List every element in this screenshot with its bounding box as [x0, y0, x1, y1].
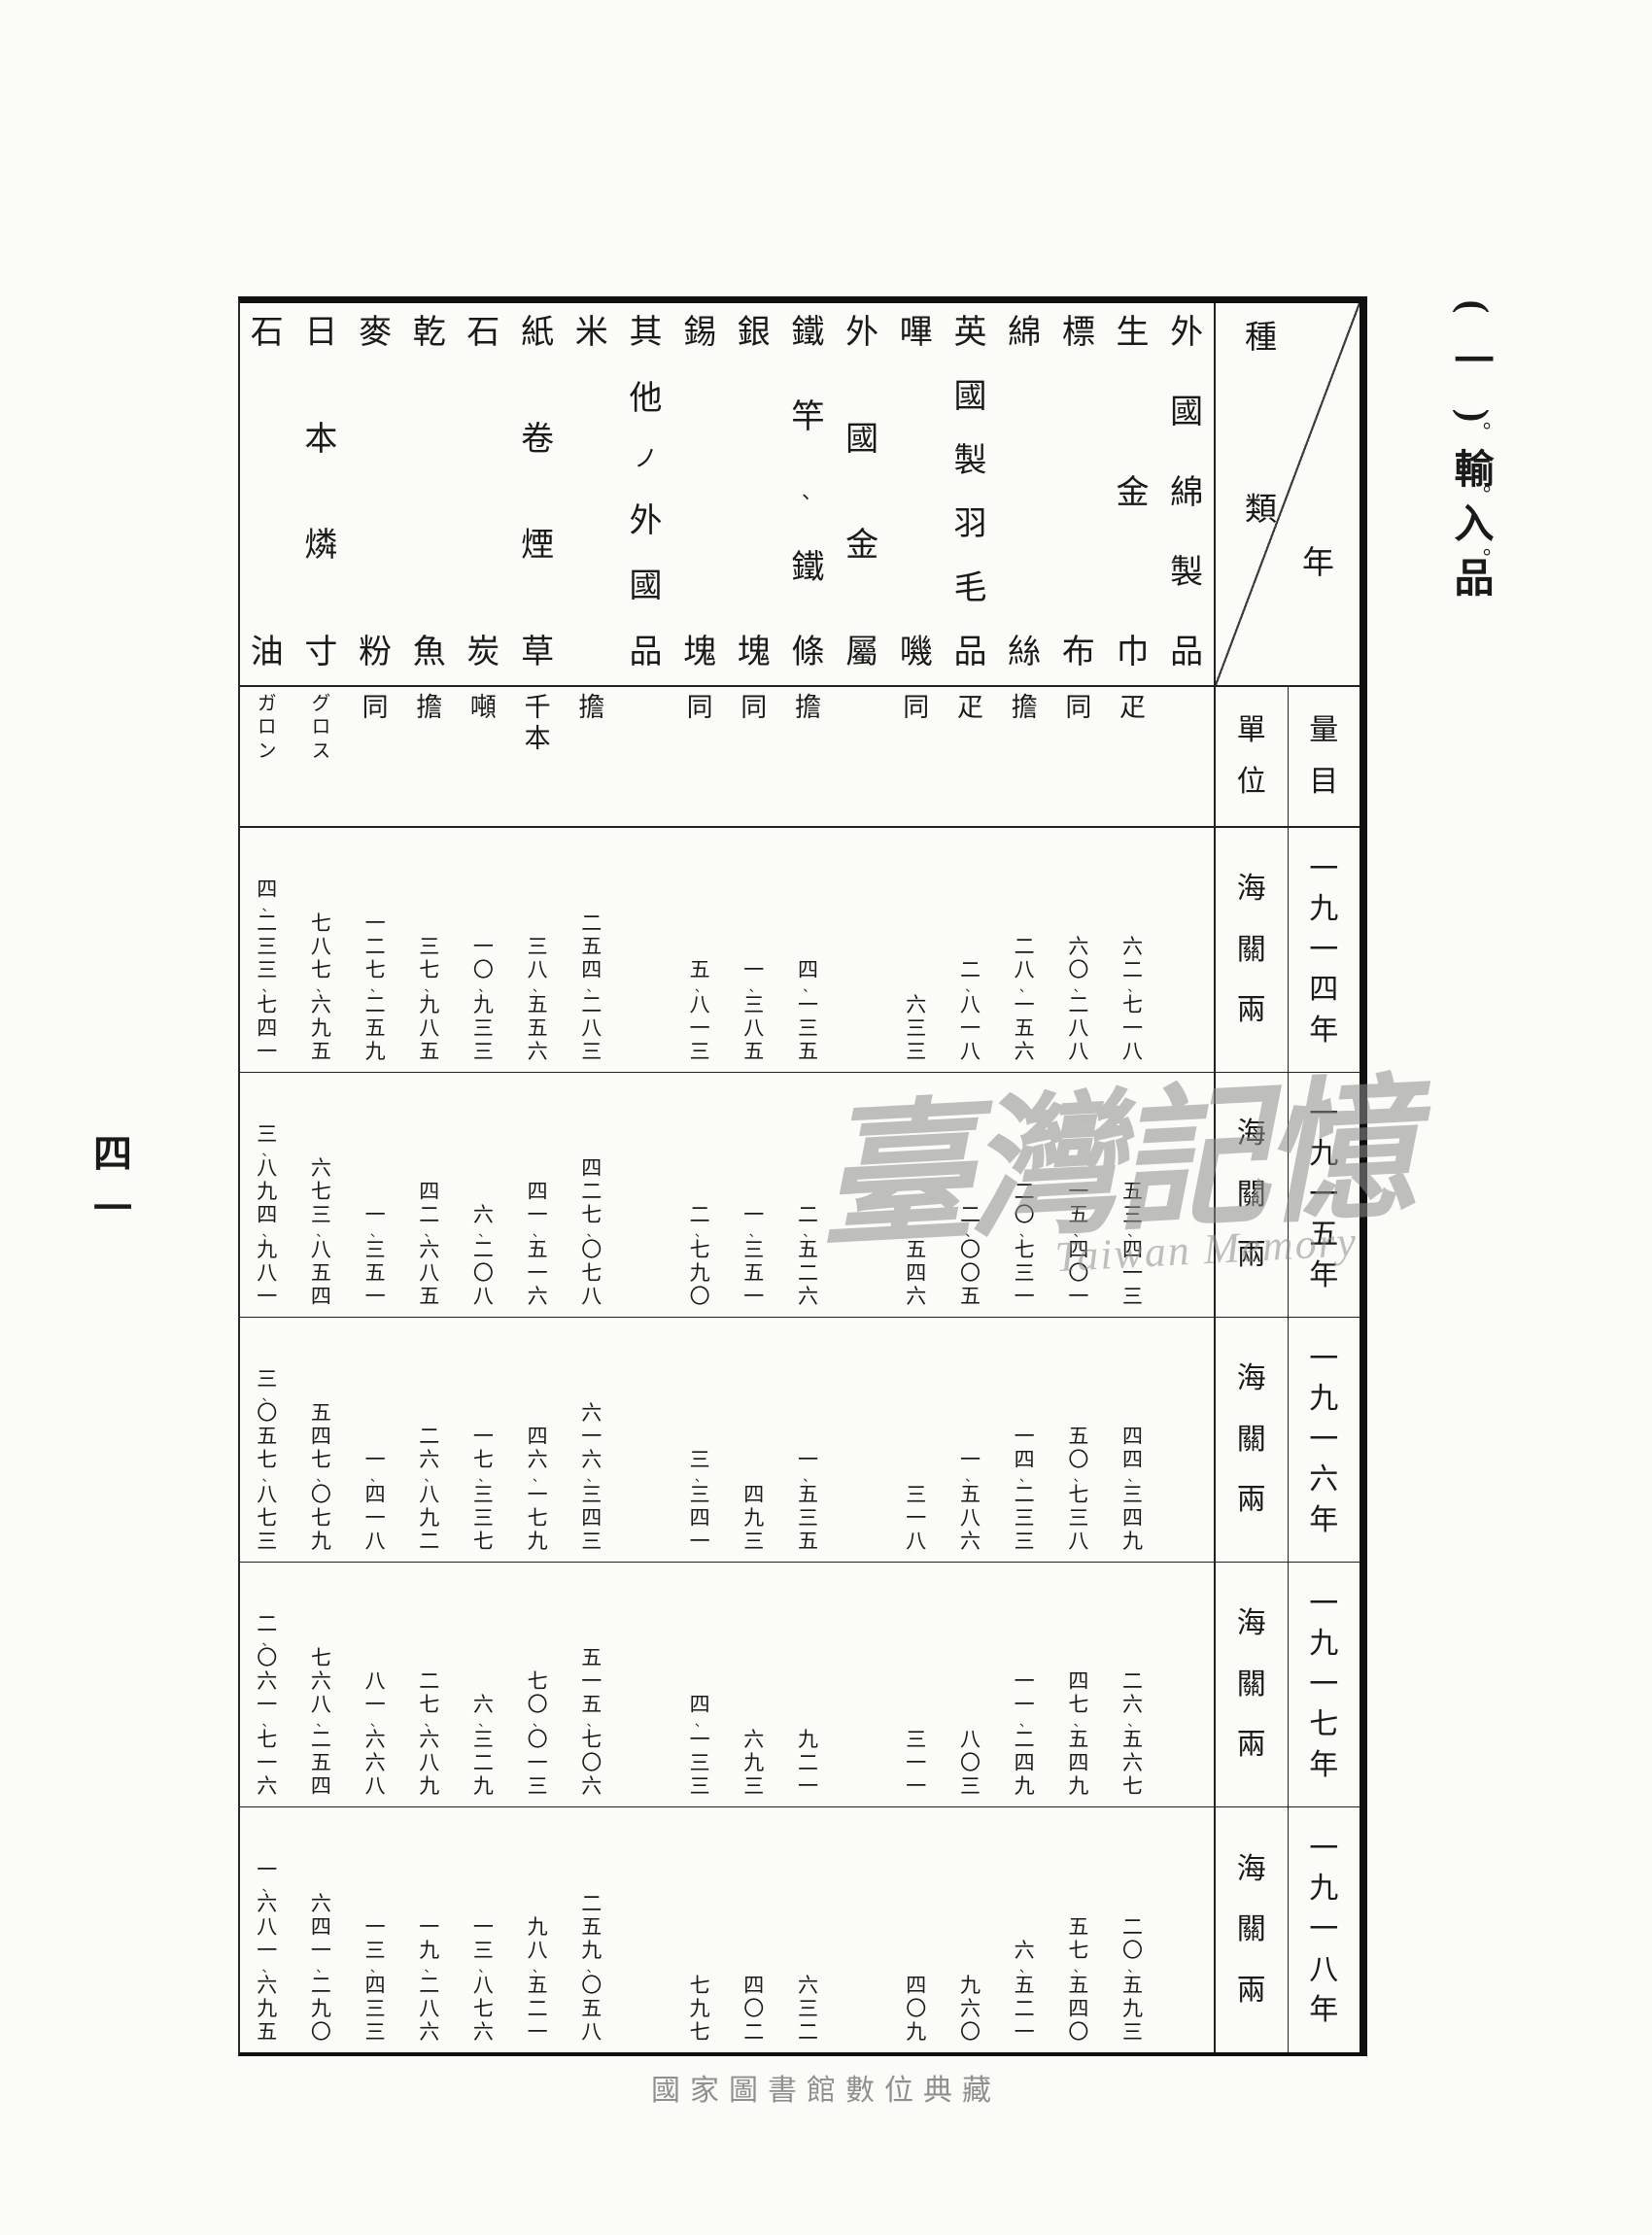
commodity-column: 嗶嘰 同 六三三 五四六 三一八 三一一 四〇九: [889, 303, 944, 2052]
value-1918: 九六〇: [960, 1813, 981, 2043]
unit-cell: 擔: [997, 687, 1051, 828]
commodity-name: 麥粉: [359, 317, 392, 670]
value-cell: 一三、四三三: [348, 1807, 402, 2052]
value-cell: 二六、八九二: [402, 1318, 457, 1563]
value-1916: 三、〇五七、八七三: [257, 1324, 277, 1552]
value-cell: 四、一三五: [781, 828, 836, 1073]
value-cell: [1159, 828, 1214, 1073]
value-cell: 六〇、二八八: [1051, 828, 1106, 1073]
unit-value: 噸: [470, 695, 497, 721]
value-1914: 六三三: [906, 834, 926, 1062]
value-cell: 一七、三三七: [457, 1318, 511, 1563]
value-cell: 三七、九八五: [402, 828, 457, 1073]
year-subcell: 一九一四年: [1289, 828, 1360, 1072]
value-1917: 六九三: [743, 1568, 764, 1797]
value-cell: [619, 1563, 673, 1807]
year-row-header: 海關兩 一九一四年: [1216, 828, 1359, 1073]
value-cell: 二〇、五九三: [1106, 1807, 1160, 2052]
value-cell: 一二七、二五九: [348, 828, 402, 1073]
value-1914: 四、一三五: [798, 834, 818, 1062]
value-cell: 七〇、〇一三: [510, 1563, 565, 1807]
value-1916: 三一八: [906, 1324, 926, 1552]
value-cell: 五、八一三: [672, 828, 727, 1073]
value-1917: 四七、五四九: [1068, 1568, 1088, 1797]
value-1915: 一五、四〇一: [1068, 1079, 1088, 1307]
commodity-column: 日本燐寸 グロス 七八七、六九五 六七三、八五四 五四七、〇七九 七六八、二五四…: [294, 303, 349, 2052]
commodity-column: 鐵竿、鐵條 擔 四、一三五 二、五二六 一、五三五 九二一 六三二: [781, 303, 836, 2052]
unit-value: 同: [903, 695, 929, 721]
value-cell: 一三、八七六: [457, 1807, 511, 2052]
value-cell: [835, 1073, 889, 1318]
value-cell: 四〇二: [727, 1807, 781, 2052]
scanned-document-page: (一)輸入品 。 。 。 種類 年 單位 量目 海關兩 一九一四年 海關兩: [0, 0, 1652, 2235]
value-cell: 九八、五二一: [510, 1807, 565, 2052]
value-cell: 一、三八五: [727, 828, 781, 1073]
commodity-name-cell: 麥粉: [348, 303, 402, 687]
commodity-name: 錫塊: [683, 317, 716, 670]
value-cell: 六二、七一八: [1106, 828, 1160, 1073]
value-1918: 四〇九: [906, 1813, 926, 2043]
value-cell: [1159, 1807, 1214, 2052]
value-unit-label: 海關兩: [1237, 1318, 1266, 1562]
value-1918: 一三、八七六: [473, 1813, 494, 2043]
value-1918: 四〇二: [743, 1813, 764, 2043]
commodity-name: 石油: [251, 317, 284, 670]
value-unit-subcell: 海關兩: [1216, 828, 1289, 1072]
value-1916: 六一六、三四三: [581, 1324, 602, 1552]
value-cell: 二、八一八: [944, 828, 998, 1073]
value-cell: 八一、六六八: [348, 1563, 402, 1807]
commodity-column: 乾魚 擔 三七、九八五 四二、六八五 二六、八九二 二七、六八九 一九、二八六: [402, 303, 457, 2052]
value-cell: 六、三二九: [457, 1563, 511, 1807]
year-row-header: 海關兩 一九一八年: [1216, 1807, 1359, 2052]
year-row-header: 海關兩 一九一七年: [1216, 1563, 1359, 1807]
value-cell: 五〇、七三八: [1051, 1318, 1106, 1563]
unit-cell: グロス: [294, 687, 349, 828]
year-row-header: 海關兩 一九一六年: [1216, 1318, 1359, 1563]
unit-value: 擔: [416, 695, 442, 721]
value-cell: 六、五二一: [997, 1807, 1051, 2052]
value-1917: 二、〇六一、七一六: [257, 1568, 277, 1797]
value-1914: 六〇、二八八: [1068, 834, 1088, 1062]
commodity-name: 其他ノ外國品: [629, 317, 662, 670]
unit-value: 同: [740, 695, 767, 721]
value-cell: 九二一: [781, 1563, 836, 1807]
emphasis-dot: 。: [1483, 405, 1503, 434]
unit-header-subcell: 單位: [1216, 687, 1289, 826]
unit-cell: 擔: [781, 687, 836, 828]
value-1915: 二〇、七三一: [1015, 1079, 1035, 1307]
value-1915: 三、八九四、九八一: [257, 1079, 277, 1307]
value-1916: 一、四一八: [365, 1324, 386, 1552]
commodity-column: 米 擔 二五四、二八三 四二七、〇七八 六一六、三四三 五一五、七〇六 二五九、…: [565, 303, 619, 2052]
unit-cell: [619, 687, 673, 828]
commodity-column: 麥粉 同 一二七、二五九 一、三五一 一、四一八 八一、六六八 一三、四三三: [348, 303, 402, 2052]
value-1916: 一七、三三七: [473, 1324, 494, 1552]
value-cell: 七八七、六九五: [294, 828, 349, 1073]
value-1915: 一、三五一: [365, 1079, 386, 1307]
value-1917: 二七、六八九: [419, 1568, 439, 1797]
unit-cell: 擔: [402, 687, 457, 828]
unit-value: 同: [1065, 695, 1091, 721]
value-cell: 一、三五一: [348, 1073, 402, 1318]
commodity-name: 鐵竿、鐵條: [791, 317, 824, 670]
value-cell: 一、六八一、六九五: [240, 1807, 294, 2052]
value-1914: 六二、七一八: [1122, 834, 1143, 1062]
commodity-name-cell: 銀塊: [727, 303, 781, 687]
value-1916: 二六、八九二: [419, 1324, 439, 1552]
commodity-name: 英國製羽毛品: [953, 317, 986, 670]
commodity-name-cell: 石油: [240, 303, 294, 687]
import-statistics-table: 種類 年 單位 量目 海關兩 一九一四年 海關兩 一九一五年 海關兩 一九一六年…: [238, 296, 1367, 2056]
section-title-text: (一)輸入品: [1421, 287, 1528, 599]
value-cell: 一、五三五: [781, 1318, 836, 1563]
corner-cell: 種類 年: [1216, 303, 1359, 687]
commodity-name-cell: 綿絲: [997, 303, 1051, 687]
unit-value: 同: [687, 695, 713, 721]
commodity-name-cell: 標布: [1051, 303, 1106, 687]
value-1915: 四一、五一六: [528, 1079, 548, 1307]
commodity-column: 石炭 噸 一〇、九三三 六、二〇八 一七、三三七 六、三二九 一三、八七六: [457, 303, 511, 2052]
value-cell: 六四一、二九〇: [294, 1807, 349, 2052]
value-cell: 六七三、八五四: [294, 1073, 349, 1318]
value-cell: 一、四一八: [348, 1318, 402, 1563]
commodity-name: 生金巾: [1116, 317, 1149, 670]
value-cell: 四九三: [727, 1318, 781, 1563]
value-1914: 五、八一三: [690, 834, 710, 1062]
value-1918: 二五九、〇五八: [581, 1813, 602, 2043]
value-1918: 五七、五四〇: [1068, 1813, 1088, 2043]
year-label: 一九一八年: [1309, 1807, 1338, 2052]
value-unit-subcell: 海關兩: [1216, 1073, 1289, 1317]
value-1914: 三八、五五六: [528, 834, 548, 1062]
value-cell: [835, 1318, 889, 1563]
unit-cell: 噸: [457, 687, 511, 828]
value-cell: 四二、六八五: [402, 1073, 457, 1318]
value-1918: 二〇、五九三: [1122, 1813, 1143, 2043]
value-cell: 三一一: [889, 1563, 944, 1807]
commodity-name-cell: 英國製羽毛品: [944, 303, 998, 687]
value-cell: 二、七九〇: [672, 1073, 727, 1318]
value-1914: 三七、九八五: [419, 834, 439, 1062]
value-1917: 七〇、〇一三: [528, 1568, 548, 1797]
year-subcell: 一九一六年: [1289, 1318, 1360, 1562]
value-unit-subcell: 海關兩: [1216, 1318, 1289, 1562]
commodity-column: 外國綿製品: [1159, 303, 1214, 2052]
value-1917: 一一、二四九: [1015, 1568, 1035, 1797]
value-unit-label: 海關兩: [1237, 828, 1266, 1072]
value-cell: 二五四、二八三: [565, 828, 619, 1073]
table-header-column: 種類 年 單位 量目 海關兩 一九一四年 海關兩 一九一五年 海關兩 一九一六年…: [1214, 303, 1359, 2052]
unit-value: グロス: [312, 695, 330, 761]
value-unit-subcell: 海關兩: [1216, 1807, 1289, 2052]
value-1916: 四四、三四九: [1122, 1324, 1143, 1552]
commodity-name: 日本燐寸: [304, 317, 337, 670]
year-row-header: 海關兩 一九一五年: [1216, 1073, 1359, 1318]
value-1914: 二五四、二八三: [581, 834, 602, 1062]
year-label: 一九一四年: [1309, 828, 1338, 1072]
value-cell: 二六、五六七: [1106, 1563, 1160, 1807]
value-cell: 五三、四一三: [1106, 1073, 1160, 1318]
value-cell: 三、八九四、九八一: [240, 1073, 294, 1318]
value-1914: 一、三八五: [743, 834, 764, 1062]
corner-kind-label: 種類: [1245, 323, 1277, 527]
commodity-column: 紙卷煙草 千本 三八、五五六 四一、五一六 四六、一七九 七〇、〇一三 九八、五…: [510, 303, 565, 2052]
unit-quantity-header-cell: 單位 量目: [1216, 687, 1359, 828]
value-1917: 三一一: [906, 1568, 926, 1797]
commodity-name-cell: 紙卷煙草: [510, 303, 565, 687]
value-cell: 五一五、七〇六: [565, 1563, 619, 1807]
value-cell: 二、〇〇五: [944, 1073, 998, 1318]
value-cell: 三、〇五七、八七三: [240, 1318, 294, 1563]
value-cell: 一、五八六: [944, 1318, 998, 1563]
commodity-name: 銀塊: [738, 317, 771, 670]
value-1918: 七九七: [690, 1813, 710, 2043]
value-cell: 二〇、七三一: [997, 1073, 1051, 1318]
value-unit-label: 海關兩: [1237, 1807, 1266, 2052]
unit-value: 擔: [795, 695, 821, 721]
value-1916: 三、三四一: [690, 1324, 710, 1552]
value-cell: 二七、六八九: [402, 1563, 457, 1807]
value-1917: 八一、六六八: [365, 1568, 386, 1797]
unit-cell: 同: [727, 687, 781, 828]
unit-value: ガロン: [258, 695, 276, 761]
value-1915: 二、〇〇五: [960, 1079, 981, 1307]
value-cell: 五七、五四〇: [1051, 1807, 1106, 2052]
unit-cell: 同: [889, 687, 944, 828]
value-1915: 四二、六八五: [419, 1079, 439, 1307]
commodity-name-cell: 錫塊: [672, 303, 727, 687]
value-cell: [619, 1318, 673, 1563]
value-1918: 六四一、二九〇: [311, 1813, 331, 2043]
unit-cell: 同: [348, 687, 402, 828]
commodity-column: 其他ノ外國品: [619, 303, 673, 2052]
value-cell: 二八、一五六: [997, 828, 1051, 1073]
value-1916: 一、五三五: [798, 1324, 818, 1552]
value-cell: 三一八: [889, 1318, 944, 1563]
value-1915: 二、五二六: [798, 1079, 818, 1307]
value-1916: 一、五八六: [960, 1324, 981, 1552]
value-1917: 六、三二九: [473, 1568, 494, 1797]
value-1918: 六三二: [798, 1813, 818, 2043]
value-cell: 五四七、〇七九: [294, 1318, 349, 1563]
value-unit-label: 海關兩: [1237, 1073, 1266, 1317]
unit-cell: [1159, 687, 1214, 828]
value-cell: 四、二三三、七四一: [240, 828, 294, 1073]
commodity-column: 英國製羽毛品 疋 二、八一八 二、〇〇五 一、五八六 八〇三 九六〇: [944, 303, 998, 2052]
value-1914: 二八、一五六: [1015, 834, 1035, 1062]
value-1917: 四、一三三: [690, 1568, 710, 1797]
value-1914: 四、二三三、七四一: [257, 834, 277, 1062]
commodity-column: 綿絲 擔 二八、一五六 二〇、七三一 一四、二三三 一一、二四九 六、五二一: [997, 303, 1051, 2052]
value-cell: 七六八、二五四: [294, 1563, 349, 1807]
value-cell: 三八、五五六: [510, 828, 565, 1073]
quantity-header-subcell: 量目: [1289, 687, 1360, 826]
commodity-column: 標布 同 六〇、二八八 一五、四〇一 五〇、七三八 四七、五四九 五七、五四〇: [1051, 303, 1106, 2052]
value-1914: 二、八一八: [960, 834, 981, 1062]
value-cell: [835, 1807, 889, 2052]
value-cell: 七九七: [672, 1807, 727, 2052]
value-cell: 一、三五一: [727, 1073, 781, 1318]
value-1915: 一、三五一: [743, 1079, 764, 1307]
commodity-name-cell: 日本燐寸: [294, 303, 349, 687]
value-1918: 一九、二八六: [419, 1813, 439, 2043]
value-cell: 六、二〇八: [457, 1073, 511, 1318]
value-1915: 四二七、〇七八: [581, 1079, 602, 1307]
unit-cell: [835, 687, 889, 828]
value-cell: 四七、五四九: [1051, 1563, 1106, 1807]
value-cell: 四一、五一六: [510, 1073, 565, 1318]
unit-value: 擔: [1012, 695, 1038, 721]
value-1916: 五〇、七三八: [1068, 1324, 1088, 1552]
commodity-name: 嗶嘰: [900, 317, 933, 670]
unit-cell: 疋: [944, 687, 998, 828]
value-cell: 四、一三三: [672, 1563, 727, 1807]
value-1917: 五一五、七〇六: [581, 1568, 602, 1797]
emphasis-dot: 。: [1483, 468, 1503, 498]
year-subcell: 一九一七年: [1289, 1563, 1360, 1806]
value-cell: 一一、二四九: [997, 1563, 1051, 1807]
commodity-column: 錫塊 同 五、八一三 二、七九〇 三、三四一 四、一三三 七九七: [672, 303, 727, 2052]
value-1917: 九二一: [798, 1568, 818, 1797]
unit-cell: 千本: [510, 687, 565, 828]
value-cell: [1159, 1563, 1214, 1807]
commodity-name: 紙卷煙草: [521, 317, 554, 670]
value-cell: [835, 828, 889, 1073]
value-1914: 七八七、六九五: [311, 834, 331, 1062]
value-1918: 一三、四三三: [365, 1813, 386, 2043]
value-cell: [835, 1563, 889, 1807]
year-label: 一九一五年: [1309, 1073, 1338, 1317]
commodity-name-cell: 嗶嘰: [889, 303, 944, 687]
unit-cell: 同: [1051, 687, 1106, 828]
commodity-name: 標布: [1062, 317, 1095, 670]
unit-cell: 疋: [1106, 687, 1160, 828]
section-title: (一)輸入品 。 。 。: [1421, 287, 1528, 578]
value-unit-label: 海關兩: [1237, 1563, 1266, 1806]
value-1916: 一四、二三三: [1015, 1324, 1035, 1552]
value-1916: 五四七、〇七九: [311, 1324, 331, 1552]
value-cell: 四六、一七九: [510, 1318, 565, 1563]
commodity-column: 生金巾 疋 六二、七一八 五三、四一三 四四、三四九 二六、五六七 二〇、五九三: [1106, 303, 1160, 2052]
commodity-name-cell: 乾魚: [402, 303, 457, 687]
value-1915: 六、二〇八: [473, 1079, 494, 1307]
value-cell: [1159, 1073, 1214, 1318]
year-label: 一九一六年: [1309, 1318, 1338, 1562]
commodity-name: 外國綿製品: [1170, 317, 1203, 670]
value-cell: 一九、二八六: [402, 1807, 457, 2052]
value-cell: [1159, 1318, 1214, 1563]
value-1917: 二六、五六七: [1122, 1568, 1143, 1797]
commodity-name-cell: 石炭: [457, 303, 511, 687]
emphasis-dots: 。 。 。: [1483, 405, 1503, 561]
value-1918: 九八、五二一: [528, 1813, 548, 2043]
year-label: 一九一七年: [1309, 1563, 1338, 1806]
value-cell: 六三二: [781, 1807, 836, 2052]
commodity-name-cell: 外國綿製品: [1159, 303, 1214, 687]
value-1915: 二、七九〇: [690, 1079, 710, 1307]
unit-cell: ガロン: [240, 687, 294, 828]
commodity-name: 石炭: [466, 317, 499, 670]
commodity-column: 石油 ガロン 四、二三三、七四一 三、八九四、九八一 三、〇五七、八七三 二、〇…: [240, 303, 294, 2052]
unit-value: 疋: [1119, 695, 1146, 721]
value-cell: 一四、二三三: [997, 1318, 1051, 1563]
commodity-name-cell: 米: [565, 303, 619, 687]
commodity-column: 外國金屬: [835, 303, 889, 2052]
value-cell: 四四、三四九: [1106, 1318, 1160, 1563]
commodity-name-cell: 生金巾: [1106, 303, 1160, 687]
value-1915: 五四六: [906, 1079, 926, 1307]
value-1914: 一二七、二五九: [365, 834, 386, 1062]
value-cell: 五四六: [889, 1073, 944, 1318]
value-cell: [619, 1073, 673, 1318]
value-cell: 二五九、〇五八: [565, 1807, 619, 2052]
year-subcell: 一九一五年: [1289, 1073, 1360, 1317]
value-cell: 二、五二六: [781, 1073, 836, 1318]
unit-header-label: 單位: [1237, 687, 1266, 826]
quantity-header-label: 量目: [1309, 687, 1338, 826]
value-1918: 六、五二一: [1015, 1813, 1035, 2043]
unit-cell: 同: [672, 687, 727, 828]
value-1915: 六七三、八五四: [311, 1079, 331, 1307]
commodity-name-cell: 鐵竿、鐵條: [781, 303, 836, 687]
page-number: 四一: [93, 1135, 132, 1228]
value-1916: 四九三: [743, 1324, 764, 1552]
value-1914: 一〇、九三三: [473, 834, 494, 1062]
commodity-name: 綿絲: [1008, 317, 1041, 670]
value-cell: [619, 828, 673, 1073]
value-1918: 一、六八一、六九五: [257, 1813, 277, 2043]
value-cell: 八〇三: [944, 1563, 998, 1807]
unit-value: 同: [362, 695, 389, 721]
year-subcell: 一九一八年: [1289, 1807, 1360, 2052]
unit-cell: 擔: [565, 687, 619, 828]
corner-year-label: 年: [1302, 548, 1334, 580]
value-1916: 四六、一七九: [528, 1324, 548, 1552]
commodity-column: 銀塊 同 一、三八五 一、三五一 四九三 六九三 四〇二: [727, 303, 781, 2052]
value-cell: 六一六、三四三: [565, 1318, 619, 1563]
unit-value: 疋: [957, 695, 983, 721]
commodity-name-cell: 外國金屬: [835, 303, 889, 687]
commodity-name: 米: [575, 317, 608, 670]
unit-value: 擔: [578, 695, 604, 721]
commodity-name: 外國金屬: [845, 317, 878, 670]
value-1915: 五三、四一三: [1122, 1079, 1143, 1307]
value-cell: 一〇、九三三: [457, 828, 511, 1073]
value-cell: 三、三四一: [672, 1318, 727, 1563]
library-footer-caption: 國家圖書館數位典藏: [0, 2066, 1652, 2109]
value-cell: 九六〇: [944, 1807, 998, 2052]
value-cell: [619, 1807, 673, 2052]
value-1917: 八〇三: [960, 1568, 981, 1797]
emphasis-dot: 。: [1483, 532, 1503, 561]
commodity-name-cell: 其他ノ外國品: [619, 303, 673, 687]
value-cell: 四〇九: [889, 1807, 944, 2052]
value-cell: 二、〇六一、七一六: [240, 1563, 294, 1807]
value-cell: 六三三: [889, 828, 944, 1073]
value-cell: 一五、四〇一: [1051, 1073, 1106, 1318]
unit-value: 千本: [525, 695, 551, 752]
value-cell: 六九三: [727, 1563, 781, 1807]
value-cell: 四二七、〇七八: [565, 1073, 619, 1318]
commodity-name: 乾魚: [413, 317, 446, 670]
value-1917: 七六八、二五四: [311, 1568, 331, 1797]
value-unit-subcell: 海關兩: [1216, 1563, 1289, 1806]
